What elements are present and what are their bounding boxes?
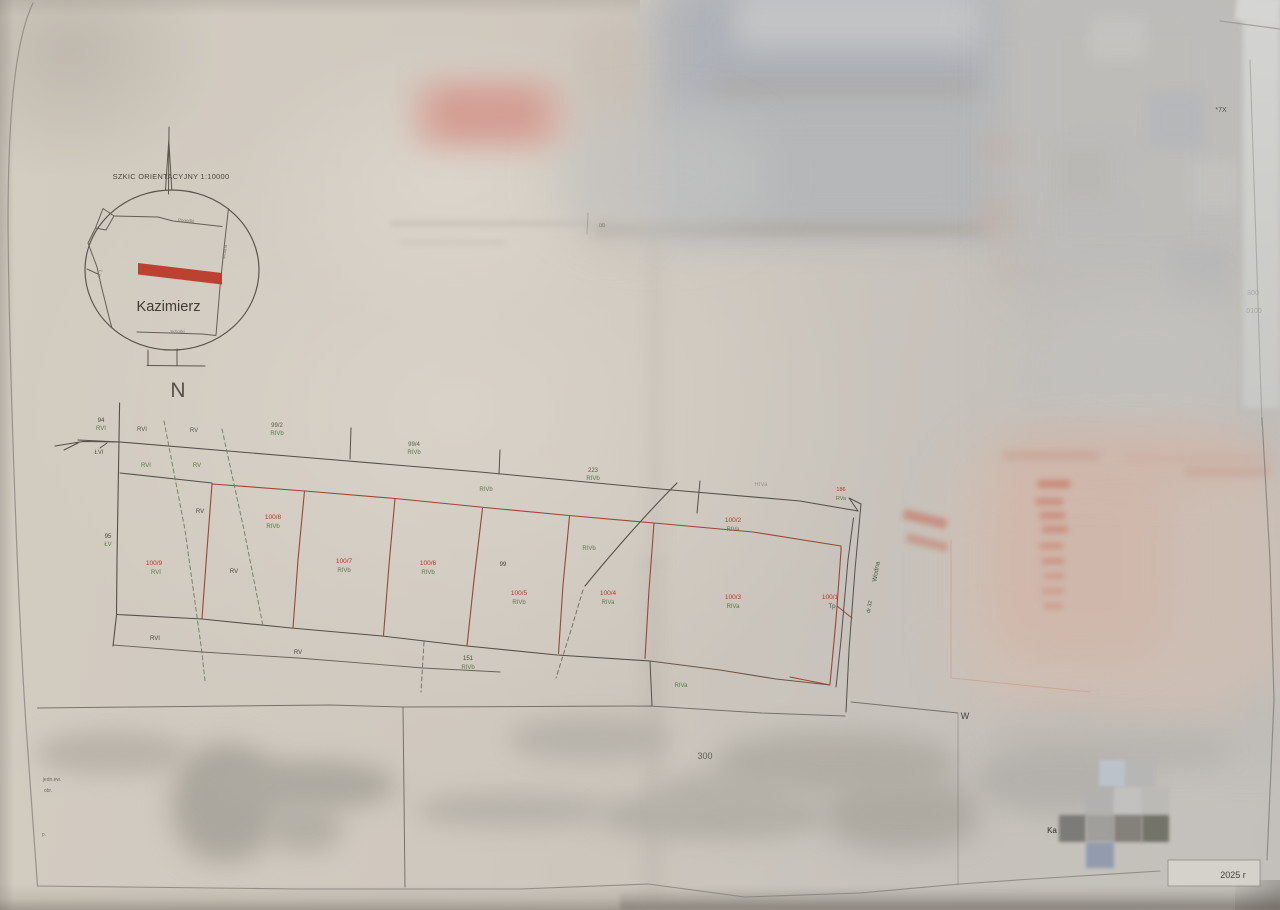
svg-text:186: 186 bbox=[836, 487, 845, 493]
svg-text:RVI: RVI bbox=[96, 426, 106, 432]
svg-text:100/7: 100/7 bbox=[336, 558, 353, 565]
svg-text:99: 99 bbox=[500, 562, 507, 568]
svg-text:RIVb: RIVb bbox=[337, 568, 351, 574]
svg-text:Wodna: Wodna bbox=[221, 244, 228, 259]
svg-text:100/5: 100/5 bbox=[511, 590, 528, 597]
svg-text:SZKIC ORIENTACYJNY 1:10000: SZKIC ORIENTACYJNY 1:10000 bbox=[113, 172, 230, 181]
svg-text:ŁV: ŁV bbox=[104, 542, 111, 548]
svg-text:Tp: Tp bbox=[828, 604, 836, 610]
svg-text:RIVa: RIVa bbox=[727, 604, 741, 610]
svg-text:2025 r: 2025 r bbox=[1220, 870, 1246, 880]
svg-text:RIVb: RIVb bbox=[586, 476, 600, 482]
svg-text:RIVb: RIVb bbox=[421, 570, 435, 576]
svg-text:*7X: *7X bbox=[1215, 107, 1227, 114]
svg-text:100/2: 100/2 bbox=[725, 517, 742, 524]
svg-text:N: N bbox=[170, 379, 185, 402]
svg-text:RVI: RVI bbox=[151, 570, 161, 576]
svg-text:300: 300 bbox=[1247, 290, 1259, 297]
svg-text:100/3: 100/3 bbox=[725, 594, 742, 601]
svg-text:300: 300 bbox=[697, 751, 712, 761]
svg-text:RIVb: RIVb bbox=[407, 450, 421, 456]
svg-text:ul. 1: ul. 1 bbox=[96, 268, 104, 278]
svg-text:RVI: RVI bbox=[137, 427, 147, 433]
svg-text:RIVa: RIVa bbox=[755, 482, 769, 488]
svg-text:100/4: 100/4 bbox=[600, 590, 617, 597]
svg-text:RIVb: RIVb bbox=[479, 487, 493, 493]
svg-text:ob: ob bbox=[599, 223, 606, 229]
svg-text:W: W bbox=[961, 711, 970, 721]
svg-text:RIVb: RIVb bbox=[266, 524, 280, 530]
svg-text:p.: p. bbox=[42, 832, 46, 838]
svg-text:dr 32: dr 32 bbox=[866, 600, 874, 613]
svg-text:RIVa: RIVa bbox=[602, 600, 616, 606]
svg-text:RIVa: RIVa bbox=[727, 527, 741, 533]
svg-text:RVI: RVI bbox=[150, 636, 160, 642]
svg-text:94: 94 bbox=[98, 418, 105, 424]
svg-text:RIVb: RIVb bbox=[461, 665, 475, 671]
svg-text:RV: RV bbox=[196, 509, 204, 515]
svg-text:RIVa: RIVa bbox=[675, 683, 689, 689]
svg-text:RVI: RVI bbox=[141, 463, 151, 469]
svg-text:95: 95 bbox=[105, 534, 112, 540]
svg-text:Pogodki: Pogodki bbox=[178, 217, 195, 223]
svg-text:ŁVI: ŁVI bbox=[94, 450, 103, 456]
svg-text:RVa: RVa bbox=[836, 496, 847, 502]
svg-text:jedn.ew.: jedn.ew. bbox=[42, 777, 61, 783]
svg-text:Wodna: Wodna bbox=[871, 561, 882, 583]
svg-text:99/4: 99/4 bbox=[408, 442, 420, 448]
svg-text:0100: 0100 bbox=[1246, 308, 1262, 315]
svg-text:Jeziorki: Jeziorki bbox=[169, 329, 184, 334]
svg-text:obr.: obr. bbox=[44, 788, 52, 794]
svg-text:Kazimierz: Kazimierz bbox=[136, 299, 200, 315]
svg-text:Ka: Ka bbox=[1047, 826, 1057, 835]
svg-text:RIVb: RIVb bbox=[270, 431, 284, 437]
svg-text:RIVb: RIVb bbox=[512, 600, 526, 606]
svg-text:151: 151 bbox=[463, 656, 474, 662]
svg-text:RV: RV bbox=[230, 569, 238, 575]
svg-text:RV: RV bbox=[294, 650, 302, 656]
svg-text:RV: RV bbox=[190, 428, 198, 434]
svg-text:RV: RV bbox=[193, 463, 201, 469]
svg-text:RIVb: RIVb bbox=[582, 546, 596, 552]
svg-text:99/2: 99/2 bbox=[271, 423, 283, 429]
svg-text:223: 223 bbox=[588, 468, 599, 474]
svg-text:100/1: 100/1 bbox=[822, 594, 839, 601]
svg-text:100/6: 100/6 bbox=[420, 560, 437, 567]
svg-text:100/8: 100/8 bbox=[265, 514, 282, 521]
svg-text:100/9: 100/9 bbox=[146, 560, 163, 567]
